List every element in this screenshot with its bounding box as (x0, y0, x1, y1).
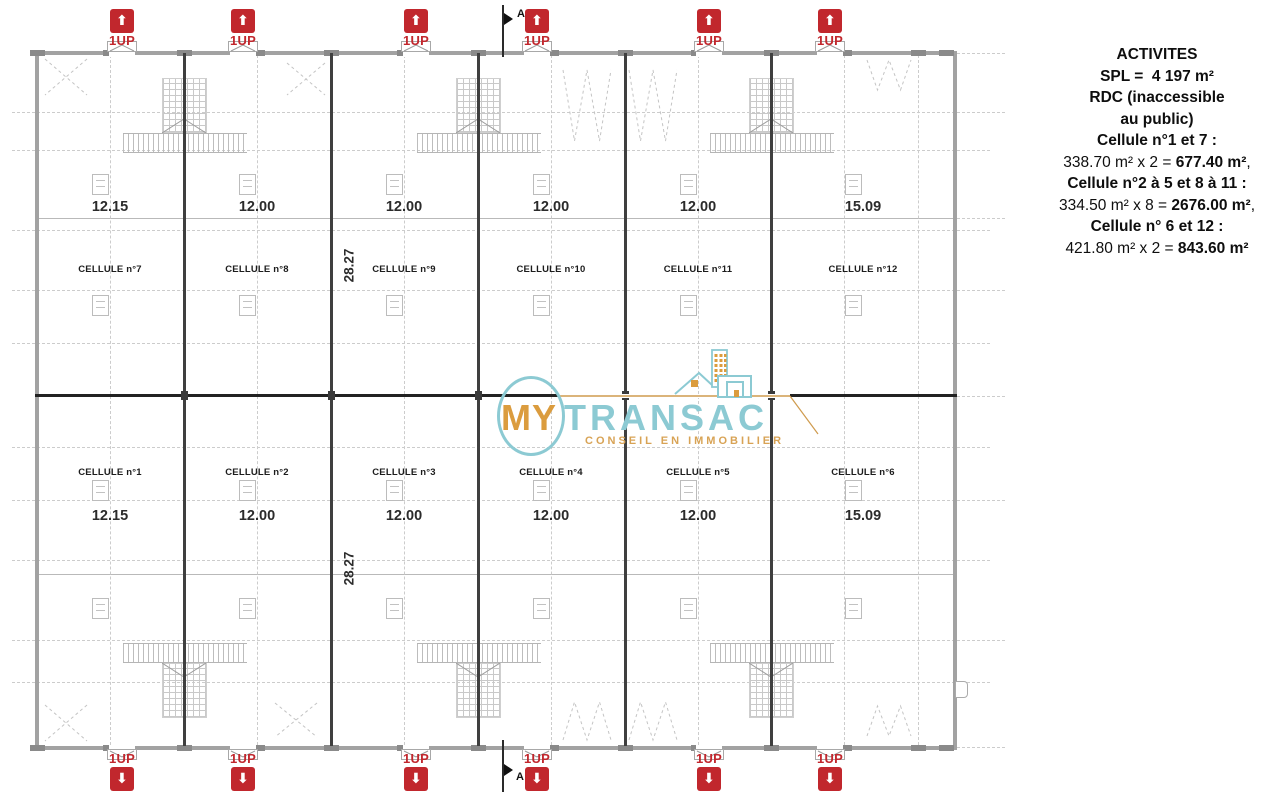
legend-text: 677.40 m² (1176, 154, 1247, 171)
dock-door-dashes (274, 702, 318, 743)
grid-ext-h (957, 112, 1005, 113)
cell-width-dim: 15.09 (793, 199, 933, 215)
dock-door-dashes (866, 704, 912, 743)
down-arrow-icon: ⬇ (237, 771, 249, 787)
cell-width-dim: 12.00 (334, 199, 474, 215)
stair-down-icon: ⬇ (818, 767, 842, 791)
legend-text: 334.50 m² x 8 = (1059, 197, 1171, 214)
cell-label: CELLULE n°8 (187, 264, 327, 275)
section-cut-label: A (516, 771, 524, 783)
dock-door-dashes (562, 700, 612, 747)
grid-ext-h (957, 640, 1005, 641)
cell-label: CELLULE n°11 (628, 264, 768, 275)
technical-note-box (533, 295, 550, 316)
legend-line: SPL = 4 197 m² (1028, 66, 1286, 88)
grid-ext-h (957, 290, 1005, 291)
technical-note-box (239, 174, 256, 195)
dock-door-dashes (628, 68, 678, 148)
stair-label: 1UP (519, 33, 555, 48)
stair-label: 1UP (225, 751, 261, 766)
stair-label: 1UP (519, 751, 555, 766)
dock-door-dashes (44, 58, 88, 101)
legend-text: Cellule n° 6 et 12 : (1091, 218, 1224, 235)
stair-label: 1UP (812, 751, 848, 766)
cell-width-dim: 15.09 (793, 508, 933, 524)
grid-line-h (35, 218, 957, 219)
dock-door-dashes (44, 704, 88, 747)
grid-ext-h (957, 747, 1005, 748)
technical-note-box (845, 295, 862, 316)
technical-note-box (239, 480, 256, 501)
wall-column-block (911, 745, 926, 751)
grid-line-v (404, 55, 405, 745)
cell-width-dim: 12.15 (40, 199, 180, 215)
stair-label: 1UP (104, 33, 140, 48)
cell-width-dim: 12.00 (334, 508, 474, 524)
wall-column-block (911, 50, 926, 56)
exterior-door-bump (955, 681, 968, 698)
stair-up-icon: ⬆ (697, 9, 721, 33)
cell-width-dim: 12.00 (187, 199, 327, 215)
up-arrow-icon: ⬆ (237, 13, 249, 29)
technical-note-box (533, 598, 550, 619)
grid-ext-h (957, 500, 1005, 501)
perimeter-wall-left (35, 51, 39, 750)
grid-line-v (844, 55, 845, 745)
section-cut-marker (504, 764, 513, 776)
down-arrow-icon: ⬇ (410, 771, 422, 787)
legend-line: RDC (inaccessible (1028, 87, 1286, 109)
up-arrow-icon: ⬆ (410, 13, 422, 29)
legend-line: Cellule n°2 à 5 et 8 à 11 : (1028, 173, 1286, 195)
down-arrow-icon: ⬇ (116, 771, 128, 787)
legend-line: Cellule n°1 et 7 : (1028, 130, 1286, 152)
cell-label: CELLULE n°1 (40, 467, 180, 478)
stair-down-icon: ⬇ (404, 767, 428, 791)
cell-label: CELLULE n°2 (187, 467, 327, 478)
technical-note-box (845, 174, 862, 195)
cell-width-dim: 12.00 (481, 508, 621, 524)
technical-note-box (680, 598, 697, 619)
grid-line-h (35, 574, 957, 575)
cell-label: CELLULE n°10 (481, 264, 621, 275)
stair-down-icon: ⬇ (525, 767, 549, 791)
cell-width-dim: 12.00 (187, 508, 327, 524)
cell-label: CELLULE n°7 (40, 264, 180, 275)
cell-label: CELLULE n°3 (334, 467, 474, 478)
wall-midline-node (181, 391, 188, 400)
technical-note-box (386, 598, 403, 619)
legend-text: Cellule n°2 à 5 et 8 à 11 : (1067, 175, 1246, 192)
stair-label: 1UP (691, 751, 727, 766)
stair-up-icon: ⬆ (404, 9, 428, 33)
cell-width-dim: 12.00 (628, 508, 768, 524)
wall-column-block (30, 50, 45, 56)
technical-note-box (533, 480, 550, 501)
section-cut-label: A (517, 8, 525, 20)
depth-dim: 28.27 (342, 539, 357, 599)
grid-ext-h (957, 53, 1005, 54)
legend-text: , (1251, 197, 1255, 214)
cell-label: CELLULE n°5 (628, 467, 768, 478)
wall-midline-node (328, 391, 335, 400)
technical-note-box (386, 174, 403, 195)
stair-label: 1UP (398, 33, 434, 48)
legend-text: Cellule n°1 et 7 : (1097, 132, 1217, 149)
grid-ext-h (957, 396, 1005, 397)
stair-up-icon: ⬆ (110, 9, 134, 33)
wall-midline-node (475, 391, 482, 400)
cell-width-dim: 12.15 (40, 508, 180, 524)
wall-column-block (30, 745, 45, 751)
technical-note-box (92, 174, 109, 195)
logo-tagline: CONSEIL EN IMMOBILIER (585, 435, 784, 447)
depth-dim: 28.27 (342, 236, 357, 296)
areas-legend: ACTIVITESSPL = 4 197 m²RDC (inaccessible… (1028, 44, 1286, 259)
up-arrow-icon: ⬆ (531, 13, 543, 29)
grid-line-v (110, 55, 111, 745)
legend-text: 2676.00 m² (1171, 197, 1250, 214)
up-arrow-icon: ⬆ (116, 13, 128, 29)
cell-label: CELLULE n°6 (793, 467, 933, 478)
dock-door-dashes (286, 62, 326, 101)
stair-up-icon: ⬆ (525, 9, 549, 33)
cell-label: CELLULE n°12 (793, 264, 933, 275)
legend-text: , (1246, 154, 1250, 171)
cell-label: CELLULE n°4 (481, 467, 621, 478)
legend-text: 338.70 m² x 2 = (1063, 154, 1175, 171)
legend-text: SPL = 4 197 m² (1100, 68, 1214, 85)
cell-width-dim: 12.00 (628, 199, 768, 215)
stair-label: 1UP (812, 33, 848, 48)
technical-note-box (680, 174, 697, 195)
stair-label: 1UP (398, 751, 434, 766)
technical-note-box (845, 598, 862, 619)
grid-line-v (918, 55, 919, 745)
floor-plan-sheet: 12.15CELLULE n°7CELLULE n°112.1512.00CEL… (0, 0, 1288, 800)
technical-note-box (239, 598, 256, 619)
legend-line: 334.50 m² x 8 = 2676.00 m², (1028, 195, 1286, 217)
legend-text: 421.80 m² x 2 = (1065, 240, 1177, 257)
down-arrow-icon: ⬇ (703, 771, 715, 787)
technical-note-box (386, 295, 403, 316)
dock-door-dashes (866, 58, 912, 97)
legend-line: ACTIVITES (1028, 44, 1286, 66)
up-arrow-icon: ⬆ (703, 13, 715, 29)
legend-line: 338.70 m² x 2 = 677.40 m², (1028, 152, 1286, 174)
legend-text: RDC (inaccessible (1089, 89, 1224, 106)
down-arrow-icon: ⬇ (531, 771, 543, 787)
technical-note-box (533, 174, 550, 195)
dock-door-dashes (628, 700, 678, 747)
legend-line: 421.80 m² x 2 = 843.60 m² (1028, 238, 1286, 260)
stair-down-icon: ⬇ (231, 767, 255, 791)
wall-column-block (939, 745, 954, 751)
stair-down-icon: ⬇ (697, 767, 721, 791)
stair-label: 1UP (104, 751, 140, 766)
technical-note-box (680, 480, 697, 501)
logo-word-transac: TRANSAC (564, 397, 768, 439)
down-arrow-icon: ⬇ (824, 771, 836, 787)
stair-label: 1UP (691, 33, 727, 48)
cell-width-dim: 12.00 (481, 199, 621, 215)
legend-line: Cellule n° 6 et 12 : (1028, 216, 1286, 238)
technical-note-box (92, 295, 109, 316)
wall-column-block (939, 50, 954, 56)
up-arrow-icon: ⬆ (824, 13, 836, 29)
technical-note-box (92, 598, 109, 619)
legend-text: ACTIVITES (1117, 46, 1198, 63)
logo-word-my: MY (501, 397, 557, 439)
legend-text: au public) (1120, 111, 1193, 128)
dock-door-dashes (562, 68, 612, 148)
technical-note-box (386, 480, 403, 501)
stair-down-icon: ⬇ (110, 767, 134, 791)
grid-ext-h (957, 218, 1005, 219)
technical-note-box (845, 480, 862, 501)
grid-line-v (257, 55, 258, 745)
section-cut-marker (504, 13, 513, 25)
legend-line: au public) (1028, 109, 1286, 131)
technical-note-box (680, 295, 697, 316)
stair-up-icon: ⬆ (231, 9, 255, 33)
technical-note-box (92, 480, 109, 501)
technical-note-box (239, 295, 256, 316)
stair-up-icon: ⬆ (818, 9, 842, 33)
legend-text: 843.60 m² (1178, 240, 1249, 257)
stair-label: 1UP (225, 33, 261, 48)
perimeter-wall-right (953, 51, 957, 750)
